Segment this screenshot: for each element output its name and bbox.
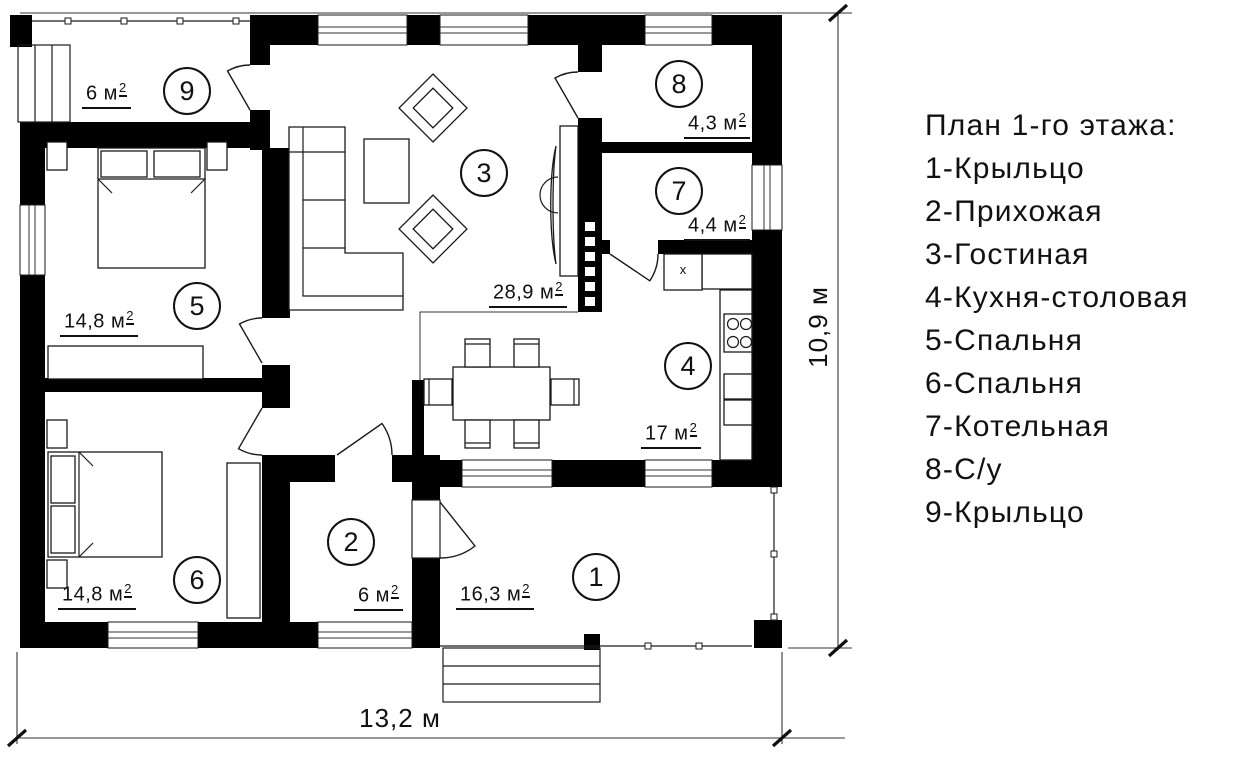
room-8-area-label: 4,3 м2 [684, 110, 750, 139]
room-4-area-label: 17 м2 [641, 420, 701, 449]
room-7-circle: 7 [655, 167, 703, 215]
room-9-area-label: 6 м2 [82, 80, 131, 109]
door-arc-room-5 [240, 318, 263, 363]
tv-unit [540, 126, 578, 276]
legend-item-4: 4-Кухня-столовая [925, 276, 1189, 319]
door-arc-room-8 [555, 72, 578, 118]
room-1-circle: 1 [572, 553, 620, 601]
legend-item-6: 6-Спальня [925, 362, 1189, 405]
room-4-circle: 4 [664, 342, 712, 390]
wardrobe-room-6 [227, 463, 260, 618]
legend-item-9: 9-Крыльцо [925, 491, 1189, 534]
room-6-circle: 6 [173, 556, 221, 604]
floor-plan-page: 1 2 3 4 5 6 7 8 9 16,3 м2 6 м2 28,9 м2 1… [0, 0, 1250, 757]
kitchen-cabinet [724, 374, 752, 425]
room-3-area-label: 28,9 м2 [489, 279, 567, 308]
door-arc-room-7 [610, 254, 658, 281]
coffee-table [364, 139, 409, 203]
dining-table [424, 339, 579, 448]
legend-item-8: 8-С/у [925, 448, 1189, 491]
door-arc-room-6 [239, 408, 263, 455]
room-2-circle: 2 [327, 518, 375, 566]
door-arc-entrance [440, 502, 475, 558]
room-1-area-label: 16,3 м2 [456, 581, 534, 610]
dimension-height-label: 10,9 м [803, 247, 833, 407]
appliance-x-label: x [673, 262, 693, 277]
room-5-circle: 5 [173, 282, 221, 330]
room-5-area-label: 14,8 м2 [60, 308, 138, 337]
room-9-circle: 9 [163, 67, 211, 115]
room-8-circle: 8 [655, 60, 703, 108]
floor-plan-drawing: 1 2 3 4 5 6 7 8 9 16,3 м2 6 м2 28,9 м2 1… [0, 0, 860, 757]
dresser-room-5 [48, 346, 203, 379]
entry-door-frame [412, 500, 440, 558]
legend: План 1-го этажа: 1-Крыльцо 2-Прихожая 3-… [925, 104, 1189, 534]
room-7-area-label: 4,4 м2 [684, 212, 750, 241]
door-arc-room-2 [337, 424, 392, 456]
armchair [399, 195, 467, 263]
bed-room-6 [48, 452, 162, 557]
nightstand [47, 142, 67, 170]
stove [724, 314, 752, 352]
room-3-circle: 3 [460, 149, 508, 197]
door-arc-porch-9 [228, 65, 251, 110]
bed-room-5 [98, 148, 205, 268]
legend-item-1: 1-Крыльцо [925, 147, 1189, 190]
room-2-area-label: 6 м2 [354, 582, 403, 611]
legend-title: План 1-го этажа: [925, 104, 1189, 147]
legend-item-2: 2-Прихожая [925, 190, 1189, 233]
nightstand [47, 420, 67, 448]
armchair [399, 74, 467, 142]
room-6-area-label: 14,8 м2 [58, 581, 136, 610]
legend-item-7: 7-Котельная [925, 405, 1189, 448]
dimension-width-label: 13,2 м [320, 703, 480, 734]
nightstand [207, 142, 227, 170]
legend-item-3: 3-Гостиная [925, 233, 1189, 276]
legend-item-5: 5-Спальня [925, 319, 1189, 362]
